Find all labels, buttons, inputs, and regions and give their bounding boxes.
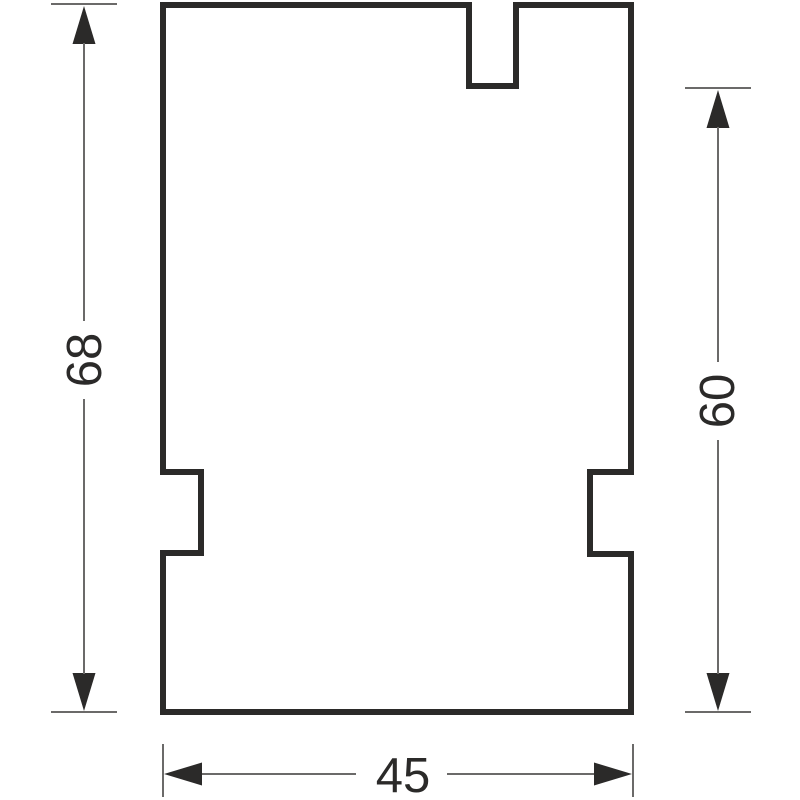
right-dimension-down-arrow-icon: [707, 673, 730, 711]
bottom-dimension-right-arrow-icon: [594, 763, 632, 786]
bottom-width-dimension: 45: [163, 744, 633, 800]
left-dimension-up-arrow-icon: [73, 6, 96, 44]
drawing-page: 68 60 45: [0, 0, 800, 800]
left-height-dimension: 68: [51, 4, 117, 712]
bottom-dimension-left-arrow-icon: [164, 763, 202, 786]
technical-drawing-canvas: 68 60 45: [0, 0, 800, 800]
profile-outline: [163, 5, 631, 712]
right-height-dimension: 60: [685, 88, 751, 712]
left-dimension-value: 68: [58, 333, 112, 388]
bottom-dimension-value: 45: [376, 749, 431, 800]
right-dimension-up-arrow-icon: [707, 90, 730, 128]
right-dimension-value: 60: [691, 374, 745, 429]
left-dimension-down-arrow-icon: [73, 673, 96, 711]
